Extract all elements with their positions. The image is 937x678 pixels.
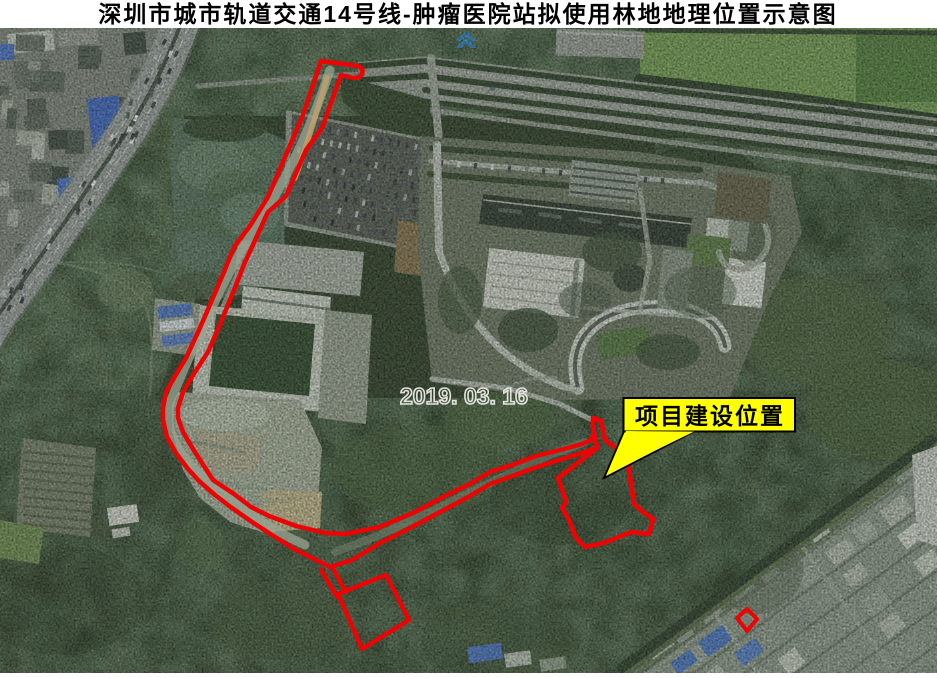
svg-text:深圳市城市轨道交通14号线-肿瘤医院站拟使用林地地理位置示意: 深圳市城市轨道交通14号线-肿瘤医院站拟使用林地地理位置示意图 bbox=[98, 1, 837, 27]
svg-text:2019. 03. 16: 2019. 03. 16 bbox=[400, 383, 528, 409]
svg-text:项目建设位置: 项目建设位置 bbox=[635, 403, 785, 429]
